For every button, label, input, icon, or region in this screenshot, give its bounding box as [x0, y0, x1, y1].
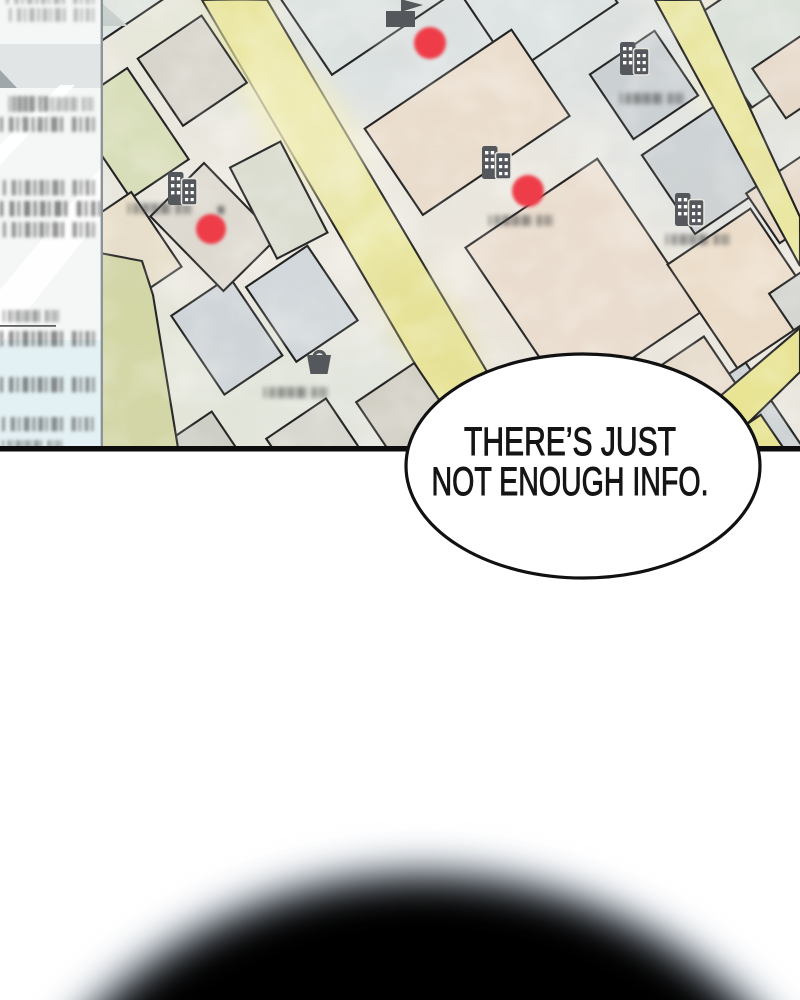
svg-text:NOT ENOUGH INFO.: NOT ENOUGH INFO. — [432, 460, 709, 504]
svg-text:THERE’S JUST: THERE’S JUST — [464, 420, 676, 464]
